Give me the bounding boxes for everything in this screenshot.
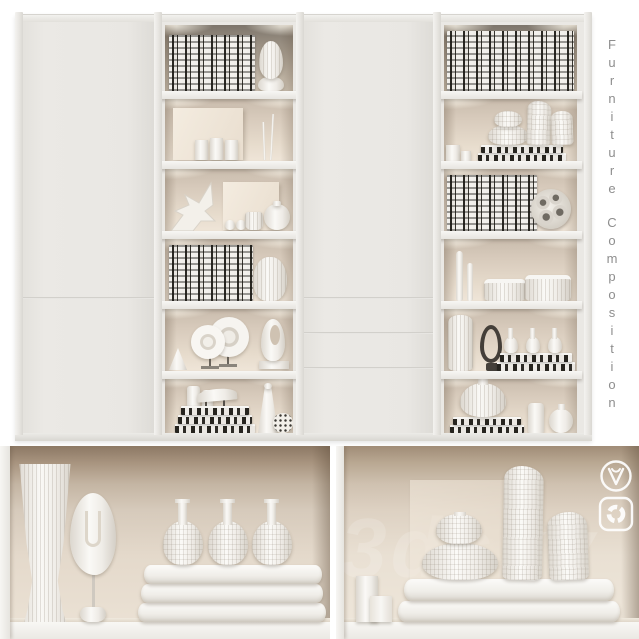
sphere-vase-neck <box>273 201 281 206</box>
shelf-cell <box>165 239 293 301</box>
patterned-sphere <box>273 413 293 433</box>
folded-towel <box>138 603 326 622</box>
drawer-seam <box>304 297 433 299</box>
gourd-vase-neck <box>478 379 488 385</box>
door-seam <box>23 297 154 299</box>
cabinet-stile <box>584 12 592 435</box>
drawer-seam <box>304 332 433 334</box>
shelf-board <box>160 91 298 99</box>
gourd-bottle-neck <box>267 501 276 525</box>
folded-towel <box>404 579 614 601</box>
niche-pillar <box>336 446 344 639</box>
shelf-column-left <box>158 22 300 433</box>
small-box <box>225 140 238 160</box>
lidded-box <box>525 275 571 301</box>
small-box <box>195 140 208 160</box>
gourd-bottle-rim <box>264 499 279 503</box>
cabinet-left-door <box>19 22 158 433</box>
face-sculpture-feature <box>85 511 101 547</box>
striped-book <box>178 415 252 424</box>
shelf-board <box>439 301 582 309</box>
corset-floor-vase <box>16 464 74 622</box>
books-row <box>169 35 255 91</box>
shelf-cell <box>165 379 293 433</box>
pebble-stack-vase-top <box>494 111 522 127</box>
niche-floor <box>336 622 639 639</box>
folded-towel <box>141 584 323 603</box>
pebble-stack-vase-top <box>436 514 482 544</box>
folded-towel <box>398 601 620 622</box>
cratered-sphere <box>531 189 571 229</box>
wire-loop-sculpture <box>480 325 502 363</box>
cylinder-vase <box>528 403 544 433</box>
shelf-board <box>439 371 582 379</box>
gourd-bottle-rim <box>220 499 235 503</box>
pebble-stack-vase-rim <box>454 512 466 516</box>
striped-book <box>175 424 255 433</box>
small-box <box>461 151 471 161</box>
tall-shard-vase <box>502 466 544 581</box>
faceted-block <box>169 348 187 370</box>
shelf-cell <box>444 309 577 371</box>
gourd-bottle-neck <box>223 501 232 525</box>
gourd-bottle <box>163 521 203 565</box>
shelf-cell <box>444 379 577 433</box>
shelf-cell <box>165 309 293 371</box>
drawer-seam <box>304 367 433 369</box>
small-box <box>370 596 392 622</box>
books-row <box>447 175 537 231</box>
spire-vase <box>456 251 463 301</box>
niche-floor <box>0 622 330 639</box>
loop-sculpture-hole <box>270 325 280 345</box>
twig-vase <box>262 122 265 160</box>
corona-renderer-logo <box>598 496 634 532</box>
shelf-cell <box>444 99 577 161</box>
lidded-box <box>484 279 526 301</box>
gourd-bottle <box>252 521 292 565</box>
gourd-bottle-neck <box>178 501 187 525</box>
page-title: FurnitureComposition <box>602 36 622 412</box>
books-row <box>447 31 574 91</box>
shelf-board <box>160 371 298 379</box>
egg-vase-base <box>258 77 284 91</box>
vray-logo <box>598 458 634 494</box>
bottle-vase <box>548 337 562 353</box>
detail-view-left <box>0 446 330 639</box>
ribbed-barrel-vase <box>253 257 287 301</box>
bottle-vase <box>504 337 518 353</box>
pebble-stack-vase-bottom <box>422 543 498 580</box>
shard-vase <box>547 511 589 580</box>
striped-book <box>497 362 575 371</box>
shelf-board <box>160 301 298 309</box>
shelf-column-right <box>437 22 584 433</box>
cabinet-composition <box>15 14 592 441</box>
small-box <box>210 138 223 160</box>
cabinet-stile <box>296 12 304 435</box>
shelf-cell <box>444 239 577 301</box>
twig-vase <box>270 114 274 160</box>
cabinet-middle-door <box>300 22 437 433</box>
shelf-board <box>160 231 298 239</box>
gourd-bottle-rim <box>175 499 190 503</box>
disc-sculpture <box>191 325 225 359</box>
folded-towel <box>144 565 322 584</box>
striped-book <box>500 353 572 362</box>
shelf-cell <box>444 169 577 231</box>
bud-vase <box>549 409 573 433</box>
niche-pillar <box>0 446 10 639</box>
gourd-vase <box>460 383 506 417</box>
ribbed-cup <box>245 212 263 230</box>
face-sculpture-base <box>80 607 106 622</box>
shard-vase <box>526 101 552 146</box>
bottle-neck <box>530 328 535 339</box>
small-box <box>446 145 460 161</box>
cone-bottle-cap <box>264 383 272 389</box>
books-row <box>169 245 253 301</box>
striped-book <box>481 145 563 153</box>
spire-vase <box>467 263 473 301</box>
face-sculpture-stem <box>92 573 95 607</box>
disc-stand-base <box>201 366 219 369</box>
shelf-cell <box>165 25 293 91</box>
tall-ribbed-vase <box>448 315 473 371</box>
striped-book <box>181 406 249 415</box>
detail-view-right: 3dsky <box>336 446 639 639</box>
gourd-bottle <box>208 521 248 565</box>
render-canvas: 3dsky FurnitureComposition <box>0 0 639 639</box>
shelf-board <box>439 91 582 99</box>
branch-sculpture <box>167 179 225 231</box>
horn-stand <box>223 400 225 406</box>
cabinet-stile <box>154 12 162 435</box>
striped-book <box>453 417 521 425</box>
shelf-board <box>439 161 582 169</box>
cabinet-stile <box>15 12 23 435</box>
sphere-vase <box>264 204 290 230</box>
striped-book <box>478 153 566 161</box>
disc-stand-base <box>219 364 237 367</box>
shelf-board <box>439 231 582 239</box>
bottle-neck <box>552 328 557 339</box>
shelf-cell <box>444 25 577 91</box>
shelf-board <box>160 161 298 169</box>
bottle-neck <box>508 328 513 339</box>
bud-vase-neck <box>558 404 565 410</box>
shelf-cell <box>165 99 293 161</box>
pebble-stack-vase-bottom <box>488 125 528 145</box>
bottle-vase <box>526 337 540 353</box>
shelf-cell <box>165 169 293 231</box>
egg-vase <box>259 41 283 79</box>
shard-vase <box>550 111 573 146</box>
striped-book <box>450 425 524 433</box>
mini-bottle <box>225 220 235 230</box>
cabinet-stile <box>433 12 441 435</box>
sculpture-base <box>259 361 289 369</box>
